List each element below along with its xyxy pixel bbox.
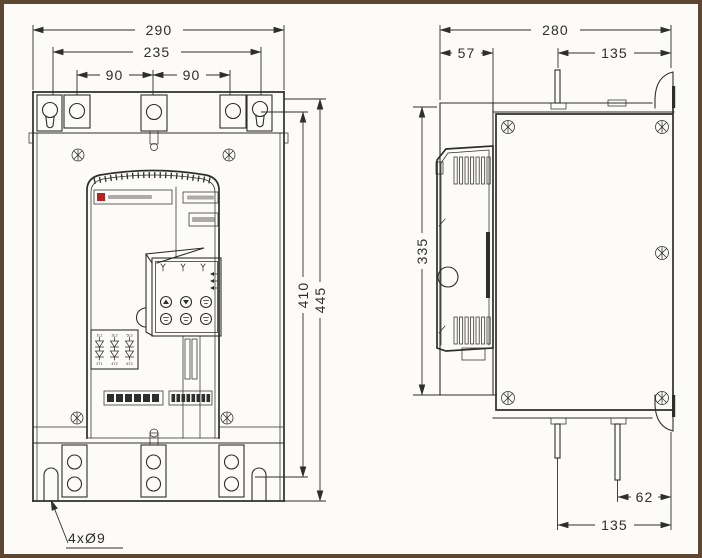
bottom-mounting-pin-inner [615, 424, 620, 480]
screw-icon [656, 121, 669, 134]
mounting-hole-tab-center [141, 429, 166, 497]
screw-icon [223, 149, 235, 161]
keyhole-slot-bottom-right-icon [252, 468, 266, 501]
mounting-tabs-top [37, 95, 272, 151]
svg-text:57: 57 [458, 45, 476, 61]
screw-icon [656, 247, 669, 260]
dim-mounting-height: 410 [255, 112, 311, 477]
svg-text:4xØ9: 4xØ9 [68, 530, 106, 546]
slot-callout: 4xØ9 [51, 500, 123, 548]
front-view: 1L1 2T1 3L2 4T2 5L3 6T3 [29, 22, 328, 548]
terminal-strip-a [104, 391, 163, 405]
screw-icon [502, 392, 515, 405]
svg-text:90: 90 [183, 67, 201, 83]
svg-text:135: 135 [601, 45, 628, 61]
illegible-label-text [192, 217, 215, 222]
mounting-hole-tab [219, 445, 244, 497]
svg-text:6T3: 6T3 [126, 362, 132, 366]
led-arrow-icon [210, 286, 218, 290]
keypad-button-6 [201, 314, 212, 325]
screw-icon [72, 149, 84, 161]
dimensions-side: 280 57 135 335 [413, 22, 671, 533]
svg-text:3L2: 3L2 [112, 334, 118, 338]
dim-hole-pitch-left: 90 [77, 67, 153, 95]
side-front-cover [436, 146, 493, 360]
keypad-button-4 [161, 314, 172, 325]
top-pin-base [551, 103, 566, 109]
svg-text:62: 62 [636, 489, 654, 505]
side-body-plate [493, 70, 675, 480]
illegible-label-text [187, 196, 214, 200]
bottom-mounting-pin-outer [555, 424, 560, 458]
cable-channel [183, 336, 200, 438]
bottom-pin-base [611, 418, 626, 424]
flange-curve-top-right [655, 72, 675, 108]
svg-text:290: 290 [146, 22, 173, 38]
mounting-hole-tab [220, 95, 246, 128]
screw-icon [221, 412, 233, 424]
screw-icon [502, 121, 515, 134]
dim-hole-pitch-right: 90 [153, 67, 230, 95]
terminal-strip-b [169, 391, 212, 405]
status-indicator-icon [181, 264, 185, 271]
keyhole-slot-bottom-left-icon [44, 468, 58, 501]
status-indicator-icon [201, 264, 205, 271]
keypad-button-down [181, 297, 192, 308]
dimension-drawing: 1L1 2T1 3L2 4T2 5L3 6T3 [0, 0, 702, 558]
svg-text:445: 445 [312, 287, 328, 314]
brand-plate [94, 190, 172, 204]
svg-text:5L3: 5L3 [127, 334, 133, 338]
dim-front-depth: 57 [440, 45, 493, 108]
screw-icon [71, 412, 83, 424]
dim-bottom-pin-inner: 62 [618, 432, 672, 530]
svg-text:4T2: 4T2 [111, 362, 117, 366]
front-body-outline [29, 92, 288, 501]
top-mounting-pin [555, 70, 560, 103]
led-arrow-icon [210, 272, 218, 276]
mounting-hole-tab-center [141, 95, 167, 151]
mounting-hole-tab [62, 445, 87, 497]
dim-top-pin-offset: 135 [558, 45, 671, 68]
keyhole-slot-top-left-icon [37, 95, 62, 131]
svg-text:280: 280 [542, 22, 569, 38]
corner-screws-side [502, 121, 669, 405]
scr-phase-3: 5L3 6T3 [126, 334, 134, 367]
illegible-brand-text [108, 195, 152, 199]
dim-bottom-pin-outer: 135 [558, 458, 672, 533]
side-view: 280 57 135 335 [413, 22, 675, 533]
vent-slats-top [454, 157, 490, 184]
scr-phase-2: 3L2 4T2 [111, 334, 119, 367]
bottom-pin-base [551, 418, 566, 424]
keypad-panel [152, 258, 221, 336]
flange-curve-bottom-right [655, 395, 675, 431]
svg-text:410: 410 [295, 282, 311, 309]
type-label-1 [183, 192, 218, 203]
svg-text:2T1: 2T1 [96, 362, 102, 366]
keyhole-slot-top-right-icon [247, 95, 272, 131]
svg-text:335: 335 [414, 238, 430, 265]
keypad-button-5 [181, 314, 192, 325]
svg-text:90: 90 [106, 67, 124, 83]
brand-logo-icon [97, 193, 105, 201]
screw-icon [656, 392, 669, 405]
scr-phase-1: 1L1 2T1 [96, 334, 104, 367]
svg-text:235: 235 [144, 44, 171, 60]
mounting-tabs-bottom [44, 429, 266, 501]
status-indicator-icon [161, 264, 165, 271]
led-arrow-icon [210, 279, 218, 283]
side-slot-bar [486, 232, 490, 298]
mounting-hole-tab [64, 95, 90, 128]
keypad-button-up [161, 297, 172, 308]
vent-slats-bottom [454, 317, 490, 344]
scr-symbol-block: 1L1 2T1 3L2 4T2 5L3 6T3 [91, 330, 138, 369]
type-label-2 [189, 213, 218, 226]
svg-text:135: 135 [601, 517, 628, 533]
svg-text:1L1: 1L1 [97, 334, 103, 338]
keypad-button-3 [201, 297, 212, 308]
